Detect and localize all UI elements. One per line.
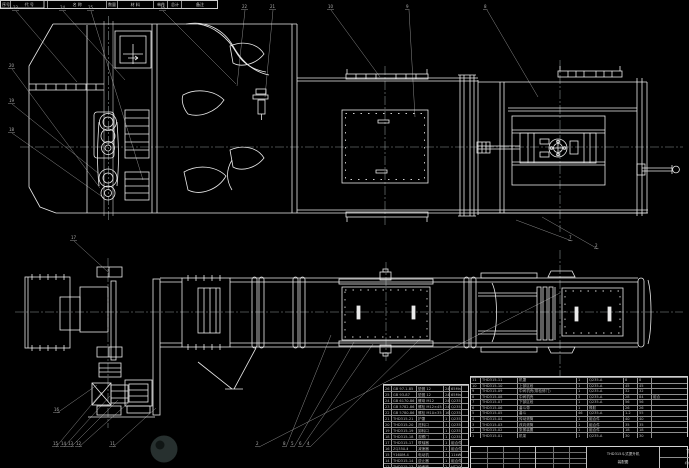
part-callout: 17 (70, 236, 77, 241)
bom-row: 15 Y160M-4 电动机 1 11kW (384, 451, 468, 457)
bom-row: 25 GB 93-87 垫圈 12 24 65Mn (384, 391, 468, 397)
part-callout: 12 (75, 442, 82, 447)
part-callout: 8 (282, 442, 287, 447)
bom-row: 23 GB 5782-86 螺栓 M12×45 24 Q235-A (384, 403, 468, 409)
bom-row: 26 GB 97.1-85 垫圈 12 24 65Mn (384, 385, 468, 391)
bom-row: 22 GB 5780-86 螺栓 M10×35 16 Q235-A (384, 409, 468, 415)
bom-row: 19 THD315-19 卸料口 1 Q235-A (384, 427, 468, 433)
signature-grid (536, 447, 587, 468)
part-callout: 7 (568, 236, 573, 241)
cad-sheet: 2324252622211098201918721716151413121128… (0, 0, 689, 468)
bom-row: 17 THD315-17 联轴器 1 组合件 (384, 439, 468, 445)
organization: 机械设计制造及自动化 (685, 462, 689, 465)
bom-row: 10 THD315-10 上部区段 1 Q235-A 45 45 (471, 383, 687, 389)
part-callout: 25 (87, 6, 94, 11)
bom-row: 14 THD315-14 逆止器 1 组合件 (384, 457, 468, 463)
bom-row: 13 THD315-13 轴承座 2 HT200 (384, 463, 468, 468)
part-callout: 5 (290, 442, 295, 447)
part-callout: 19 (8, 99, 15, 104)
bom-row: 20 THD315-20 进料口 1 Q235-A (384, 421, 468, 427)
part-callout: 9 (405, 5, 410, 10)
bom-row: 4 THD315-04 传动滚筒 1 组合件 40 40 (471, 416, 687, 422)
part-callout: 11 (109, 442, 116, 447)
bom-row: 16 ZQ350-Ⅱ 减速器 1 组合件 (384, 445, 468, 451)
part-callout: 4 (306, 442, 311, 447)
bom-row: 6 THD315-06 畚斗带 1 橡胶 26 26 (471, 405, 687, 411)
bom-row: 5 THD315-05 畚斗 46 Q235-A 1.2 55 (471, 410, 687, 416)
bom-row: 7 THD315-07 下部区段 1 Q235-A 56 56 (471, 399, 687, 405)
part-callout: 10 (327, 5, 334, 10)
bom-row: 8 THD315-08 中间机壳 3 Q235-A 28 84 组合 (471, 394, 687, 400)
bom-row: 1 THD315-01 机架 1 Q235-A 30 30 (471, 432, 687, 438)
bom-table-right: 11 THD315-11 机罩 1 Q235-A 8 8 10 THD315-1… (470, 376, 688, 437)
drawing-title: THD315斗式提升机 装配图 (587, 447, 660, 468)
bom-row: 11 THD315-11 机罩 1 Q235-A 8 8 (471, 377, 687, 383)
part-callout: 16 (53, 408, 60, 413)
part-callout: 6 (298, 442, 303, 447)
revision-grid (471, 447, 536, 468)
part-callout: 22 (241, 5, 248, 10)
drawing-title-line1: THD315斗式提升机 (607, 452, 640, 456)
part-callout: 20 (8, 64, 15, 69)
title-block: THD315斗式提升机 装配图 THD315-00 机械设计制造及自动化 (470, 446, 688, 468)
part-callout: 2 (255, 442, 260, 447)
bom-row: 9 THD315-09 中间机壳(带检修门) 1 Q235-A 32 32 (471, 388, 687, 394)
bom-row: 21 THD315-21 护罩 1 Q235-A (384, 415, 468, 421)
part-callout: 15 (52, 442, 59, 447)
part-callout: 13 (67, 442, 74, 447)
drawing-title-line2: 装配图 (618, 460, 629, 464)
bom-row: 2 THD315-02 张紧装置 1 组合件 18 18 (471, 427, 687, 433)
bom-row: 24 GB 6170-86 螺母 M12 24 Q235-A (384, 397, 468, 403)
part-callout: 21 (269, 5, 276, 10)
part-callout: 24 (59, 6, 66, 11)
bom-row: 18 THD315-18 观察门 1 Q235-A (384, 433, 468, 439)
part-callout: 23 (12, 6, 19, 11)
part-callout: 2 (594, 244, 599, 249)
part-callout: 8 (483, 5, 488, 10)
part-callout: 18 (8, 128, 15, 133)
watermark-logo (151, 436, 178, 463)
bom-row: 3 THD315-03 改向滚筒 1 组合件 35 35 (471, 421, 687, 427)
bom-table-left: 26 GB 97.1-85 垫圈 12 24 65Mn 25 GB 93-87 … (383, 384, 469, 468)
